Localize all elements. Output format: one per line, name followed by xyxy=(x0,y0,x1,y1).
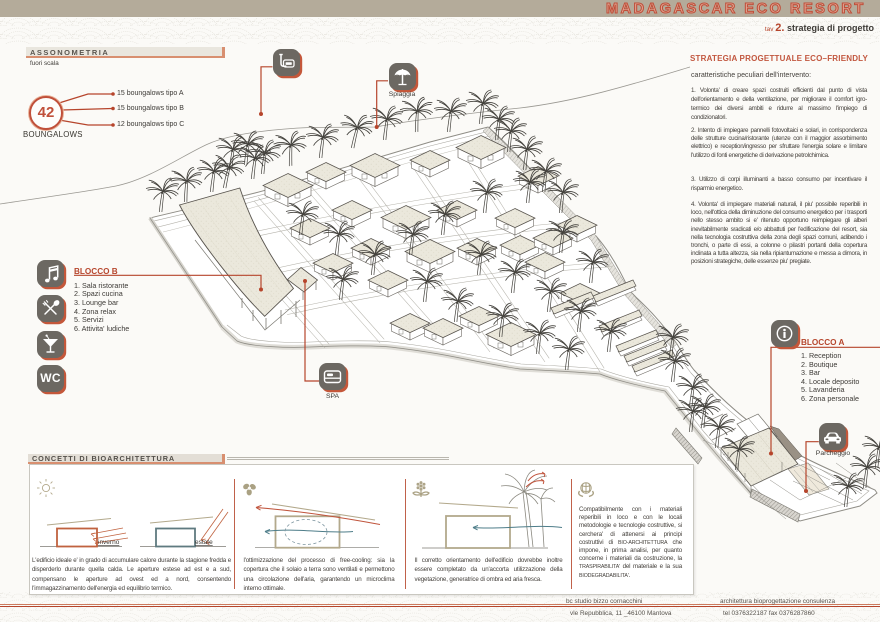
svg-text:estate: estate xyxy=(195,539,213,546)
svg-text:inverno: inverno xyxy=(98,539,120,546)
